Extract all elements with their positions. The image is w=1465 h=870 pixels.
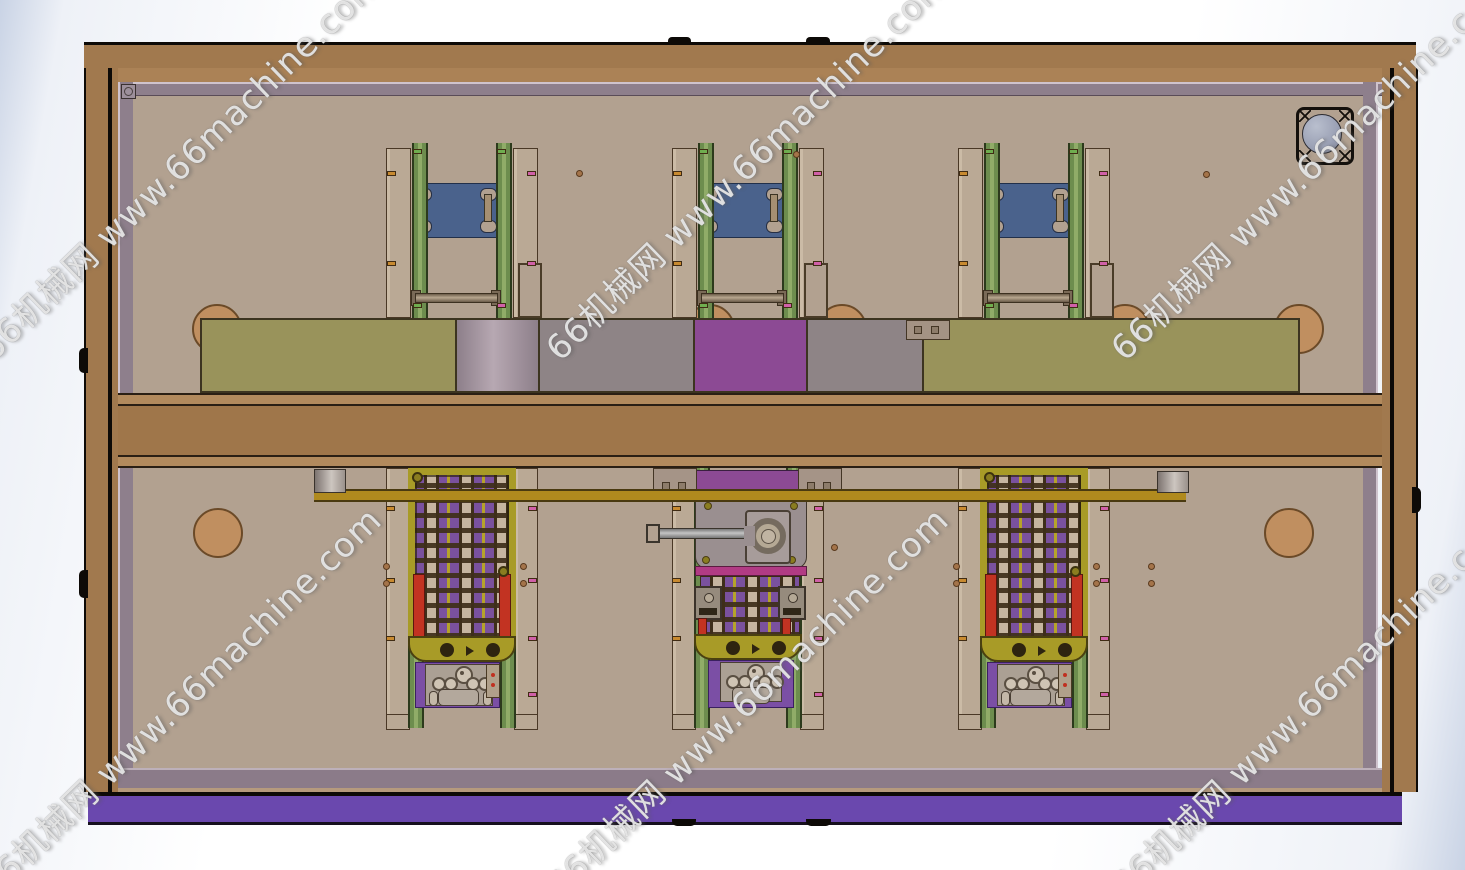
- slot: [699, 608, 717, 615]
- clip: [387, 261, 396, 266]
- table-block-purple: [693, 318, 808, 393]
- clip: [699, 303, 708, 308]
- clip: [528, 692, 537, 697]
- screw-hole-dot: [1148, 580, 1155, 587]
- fan-corner-brace: [1299, 150, 1311, 162]
- indicator-dot: [1063, 683, 1067, 687]
- gear: [770, 675, 784, 689]
- screw-hole-dot: [383, 580, 390, 587]
- rod-fork: [646, 524, 660, 543]
- clip: [814, 506, 823, 511]
- connector-block: [778, 586, 806, 620]
- step-bracket: [518, 263, 542, 318]
- indicator-dot: [1063, 673, 1067, 677]
- left-hinge-lug: [79, 570, 88, 598]
- clip: [386, 506, 395, 511]
- frame-top-tab: [806, 37, 830, 44]
- clip: [672, 636, 681, 641]
- frame-screw: [984, 472, 995, 483]
- base-foot-tab: [806, 819, 831, 826]
- frame-screw: [498, 566, 509, 577]
- knob: [772, 641, 786, 655]
- clip: [672, 506, 681, 511]
- clip: [1100, 636, 1109, 641]
- knob: [726, 641, 740, 655]
- fan-corner-brace: [1339, 150, 1351, 162]
- clip: [673, 261, 682, 266]
- clip: [413, 303, 422, 308]
- gray-gear-plate: [720, 662, 782, 702]
- ring-core: [761, 529, 776, 544]
- knob: [440, 643, 454, 657]
- screw-hole-dot: [1093, 580, 1100, 587]
- foot-right: [800, 714, 824, 730]
- bottom-trim: [118, 768, 1382, 788]
- connector-block: [1058, 664, 1072, 698]
- step-bracket: [1090, 263, 1114, 318]
- cross-rod: [987, 293, 1070, 303]
- clip: [497, 149, 506, 154]
- clip: [528, 506, 537, 511]
- table-block-gray: [538, 318, 695, 393]
- indicator-dot: [491, 683, 495, 687]
- bolt-hole: [914, 326, 922, 334]
- screw-hole-dot: [831, 544, 838, 551]
- direction-marker: [1038, 646, 1046, 656]
- connector-block: [694, 586, 722, 620]
- bolt: [790, 502, 798, 510]
- left-hinge-lug: [79, 348, 88, 373]
- cross-rod: [415, 293, 498, 303]
- clip: [497, 303, 506, 308]
- bolt: [702, 556, 710, 564]
- clip: [959, 261, 968, 266]
- foot-left: [958, 714, 982, 730]
- lower-mechanism-station: [958, 468, 1110, 730]
- foot-right: [514, 714, 538, 730]
- frame-screw: [1070, 566, 1081, 577]
- bolt-hole: [931, 326, 939, 334]
- upper-carriage-station: [958, 143, 1110, 318]
- screw-hole-dot: [520, 580, 527, 587]
- base-purple-plate: [88, 792, 1402, 825]
- bolt: [788, 593, 798, 603]
- frame-bottom-band: [980, 636, 1088, 662]
- screw-hole-dot: [576, 170, 583, 177]
- clip: [672, 578, 681, 583]
- clip: [528, 578, 537, 583]
- clip: [959, 171, 968, 176]
- clip: [783, 303, 792, 308]
- fan-unit: [1296, 107, 1354, 165]
- clip: [527, 171, 536, 176]
- clip: [387, 171, 396, 176]
- table-block-khaki-right: [922, 318, 1300, 393]
- slot: [783, 608, 801, 615]
- clip: [528, 636, 537, 641]
- actuator-rod: [656, 528, 748, 539]
- screw-hole-dot: [1148, 563, 1155, 570]
- clip: [958, 636, 967, 641]
- cutout: [438, 689, 480, 706]
- connector-block: [486, 664, 500, 698]
- screw-hole-dot: [1203, 171, 1210, 178]
- rail-end-block: [314, 469, 346, 493]
- lower-mechanism-station: [386, 468, 538, 730]
- gray-gear-plate: [425, 664, 493, 706]
- screw-hole-dot: [520, 563, 527, 570]
- frame-left-column: [84, 68, 120, 792]
- slot: [1001, 691, 1010, 706]
- clip: [527, 261, 536, 266]
- clip: [958, 506, 967, 511]
- gray-gear-plate: [997, 664, 1065, 706]
- table-roller: [455, 318, 540, 393]
- rail-end-block: [1157, 471, 1189, 493]
- frame-right-column: [1382, 68, 1418, 792]
- clip: [1099, 171, 1108, 176]
- base-foot-tab: [672, 819, 696, 826]
- screw-hole-dot: [383, 563, 390, 570]
- fan-corner-brace: [1339, 110, 1351, 122]
- cad-render-canvas: 66机械网 www.66machine.com66机械网 www.66machi…: [0, 0, 1465, 870]
- frame-top-tab: [668, 37, 691, 44]
- guide-rail: [314, 489, 1186, 502]
- table-bracket: [906, 320, 950, 340]
- clip: [673, 171, 682, 176]
- upper-carriage-station: [386, 143, 538, 318]
- clip: [814, 636, 823, 641]
- frame-bottom-band: [694, 634, 802, 660]
- slot: [429, 691, 438, 706]
- foot-left: [386, 714, 410, 730]
- indicator-dot: [491, 673, 495, 677]
- ring-opening: [744, 526, 755, 546]
- direction-marker: [752, 644, 760, 654]
- inner-trim-top: [118, 82, 1382, 96]
- clip: [985, 149, 994, 154]
- direction-marker: [466, 646, 474, 656]
- panel-boss-left: [193, 508, 243, 558]
- spacer-bar: [1056, 194, 1064, 222]
- upper-carriage-station: [672, 143, 824, 318]
- clip: [783, 149, 792, 154]
- clip: [413, 149, 422, 154]
- clip: [1100, 692, 1109, 697]
- corner-screw: [121, 84, 136, 99]
- clip: [1100, 506, 1109, 511]
- screw-hole-dot: [953, 580, 960, 587]
- knob: [1012, 643, 1026, 657]
- frame-screw: [412, 472, 423, 483]
- clip: [1069, 149, 1078, 154]
- table-block-khaki-left: [200, 318, 457, 393]
- clip: [1069, 303, 1078, 308]
- knob: [486, 643, 500, 657]
- fan-disc: [1302, 114, 1342, 154]
- cutout: [732, 687, 770, 704]
- panel-boss-right: [1264, 508, 1314, 558]
- lower-mechanism-station: [672, 468, 824, 730]
- clip: [813, 171, 822, 176]
- clip: [814, 692, 823, 697]
- magenta-bar: [695, 566, 807, 576]
- foot-left: [672, 714, 696, 730]
- step-bracket: [804, 263, 828, 318]
- cutout: [1010, 689, 1052, 706]
- cross-beam: [118, 393, 1382, 468]
- clip: [814, 578, 823, 583]
- bolt: [704, 502, 712, 510]
- bolt: [704, 593, 714, 603]
- screw-hole-dot: [953, 563, 960, 570]
- clip: [813, 261, 822, 266]
- cross-rod: [701, 293, 784, 303]
- right-hinge-lug: [1412, 487, 1421, 513]
- screw-hole-dot: [793, 151, 800, 158]
- clip: [985, 303, 994, 308]
- spacer-bar: [770, 194, 778, 222]
- frame-inner-bevel: [118, 68, 1382, 83]
- clip: [386, 636, 395, 641]
- frame-bottom-band: [408, 636, 516, 662]
- screw-hole-dot: [1093, 563, 1100, 570]
- knob: [1058, 643, 1072, 657]
- clip: [1100, 578, 1109, 583]
- spacer-bar: [484, 194, 492, 222]
- clip: [699, 149, 708, 154]
- foot-right: [1086, 714, 1110, 730]
- clip: [1099, 261, 1108, 266]
